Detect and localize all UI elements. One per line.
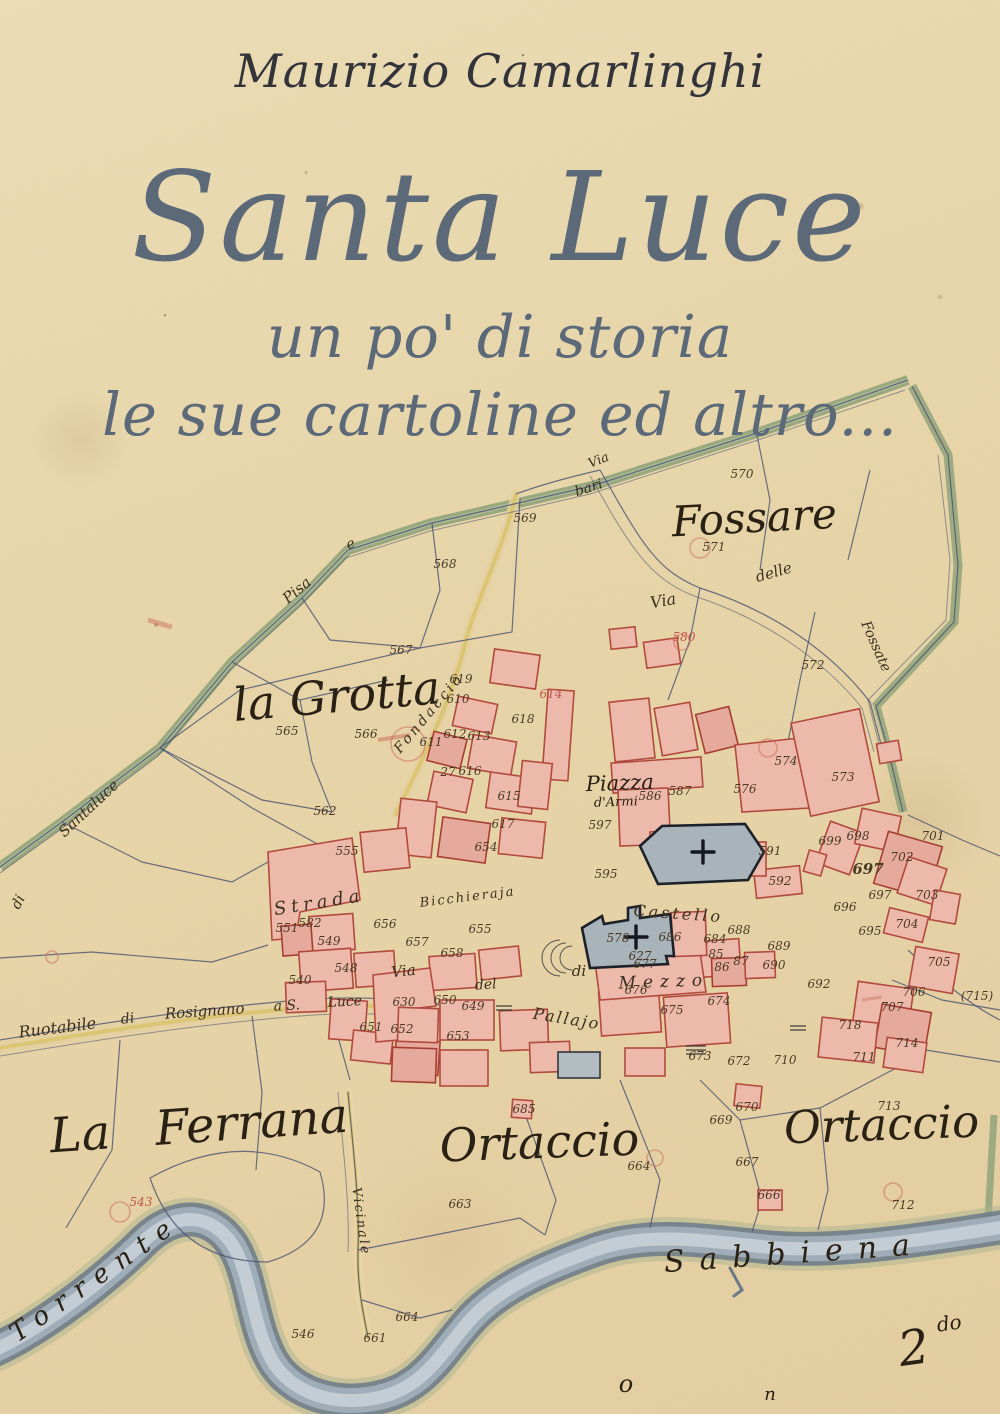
parcel-number-10: 568 — [434, 557, 457, 571]
parcel-number-94: 27 — [439, 765, 456, 779]
parcel-number-77: 653 — [447, 1029, 470, 1043]
parcel-number-12: 543 — [130, 1195, 153, 1209]
parcel-number-3: 572 — [802, 658, 825, 672]
parcel-number-35: 703 — [916, 888, 939, 902]
parcel-number-8: 567 — [390, 643, 413, 657]
parcel-number-16: 664 — [396, 1310, 419, 1324]
label-mark-n: n — [764, 1384, 776, 1405]
parcel-number-68: 551 — [276, 921, 299, 935]
parcel-number-18: 666 — [758, 1188, 781, 1202]
parcel-number-33: 695 — [859, 924, 882, 938]
cadastral-map: Fossarela GrottaLa FerranaOrtaccioOrtacc… — [0, 0, 1000, 1414]
parcel-number-65: 591 — [759, 844, 782, 858]
parcel-number-25: 711 — [853, 1050, 876, 1064]
parcel-number-1: 571 — [703, 540, 726, 554]
parcel-number-27: (715) — [961, 989, 994, 1003]
parcel-number-70: 548 — [335, 961, 358, 975]
parcel-number-85: 612 — [444, 727, 467, 741]
parcel-number-47: 686 — [659, 930, 682, 944]
parcel-number-69: 549 — [318, 934, 341, 948]
parcel-number-19: 667 — [736, 1155, 759, 1169]
parcel-number-74: 649 — [462, 999, 485, 1013]
parcel-number-17: 664 — [628, 1159, 651, 1173]
parcel-number-21: 670 — [736, 1100, 759, 1114]
parcel-number-73: 650 — [434, 993, 457, 1007]
parcel-number-62: 587 — [669, 784, 692, 798]
parcel-number-56: 85 — [708, 947, 723, 961]
parcel-number-51: 675 — [661, 1003, 684, 1017]
parcel-number-34: 696 — [834, 900, 857, 914]
parcel-number-78: 654 — [475, 840, 498, 854]
parcel-number-52: 674 — [708, 994, 731, 1008]
parcel-number-15: 663 — [449, 1197, 472, 1211]
parcel-number-20: 669 — [710, 1113, 733, 1127]
parcel-number-87: 614 — [540, 687, 563, 701]
parcel-number-11: 569 — [514, 511, 537, 525]
street-ruotabile-di: di — [120, 1010, 135, 1027]
parcel-number-41: 702 — [891, 850, 914, 864]
label-ortaccio-west: Ortaccio — [439, 1112, 640, 1173]
parcel-number-72: 630 — [393, 995, 416, 1009]
parcel-number-55: 710 — [774, 1053, 797, 1067]
street-luce: Luce — [326, 993, 362, 1011]
parcel-number-0: 570 — [731, 467, 754, 481]
parcel-number-58: 87 — [733, 954, 749, 968]
parcel-number-46: 684 — [704, 932, 727, 946]
label-piazza-2: d'Armi — [594, 794, 638, 811]
parcel-number-84: 611 — [420, 735, 443, 749]
parcel-number-22: 685 — [513, 1102, 536, 1116]
parcel-number-45: 688 — [728, 923, 751, 937]
parcel-number-9: 562 — [314, 804, 337, 818]
parcel-number-66: 555 — [336, 844, 359, 858]
label-fossare: Fossare — [669, 489, 838, 547]
parcel-number-61: 597 — [589, 818, 612, 832]
parcel-number-26: 714 — [896, 1036, 919, 1050]
parcel-number-36: 697 — [852, 860, 884, 878]
parcel-number-81: 657 — [406, 935, 429, 949]
parcel-number-82: 658 — [441, 946, 464, 960]
parcel-number-79: 655 — [469, 922, 492, 936]
parcel-number-23: 713 — [878, 1099, 901, 1113]
parcel-number-38: 698 — [847, 829, 870, 843]
parcel-number-80: 656 — [374, 917, 397, 931]
parcel-number-90: 617 — [492, 817, 515, 831]
street-via-pallajo-1: Via — [390, 961, 416, 981]
parcel-number-37: 697 — [869, 888, 892, 902]
parcel-number-42: 692 — [808, 977, 831, 991]
parcel-number-14: 661 — [364, 1331, 387, 1345]
parcel-number-67: 582 — [299, 916, 322, 930]
parcel-number-54: 672 — [728, 1054, 751, 1068]
street-di-mezzo-1: di — [572, 962, 587, 980]
parcel-number-13: 546 — [292, 1327, 315, 1341]
parcel-number-6: 565 — [276, 724, 299, 738]
parcel-number-91: 618 — [512, 712, 535, 726]
parcel-number-93: 627 — [629, 949, 652, 963]
parcel-number-32: 704 — [896, 917, 919, 931]
parcel-number-92: 619 — [450, 672, 473, 686]
parcel-number-5: 574 — [775, 754, 798, 768]
parcel-number-49: 578 — [607, 931, 630, 945]
parcel-number-57: 86 — [714, 960, 730, 974]
street-via-pallajo-2: del — [474, 976, 497, 993]
parcel-number-83: 610 — [447, 692, 470, 706]
parcel-number-71: 540 — [289, 973, 312, 987]
parcel-number-43: 690 — [763, 958, 786, 972]
parcel-number-89: 616 — [459, 764, 482, 778]
parcel-number-75: 651 — [360, 1020, 383, 1034]
parcel-number-28: 718 — [839, 1018, 862, 1032]
parcel-number-76: 652 — [391, 1022, 414, 1036]
parcel-number-86: 613 — [468, 729, 491, 743]
label-quarter-mark-sup: do — [935, 1309, 963, 1336]
parcel-number-31: 705 — [928, 955, 951, 969]
parcel-number-60: 595 — [595, 867, 618, 881]
parcel-number-2: 580 — [673, 630, 696, 644]
parcel-number-63: 586 — [639, 789, 662, 803]
church-upper — [640, 824, 766, 884]
parcel-number-59: 592 — [769, 874, 792, 888]
parcel-number-39: 699 — [819, 834, 842, 848]
parcel-number-88: 615 — [498, 789, 521, 803]
parcel-number-53: 673 — [689, 1049, 712, 1063]
book-cover: Fossarela GrottaLa FerranaOrtaccioOrtacc… — [0, 0, 1000, 1414]
parcel-number-40: 701 — [922, 829, 945, 843]
parcel-number-44: 689 — [768, 939, 791, 953]
parcel-number-30: 706 — [903, 985, 926, 999]
parcel-number-24: 712 — [892, 1198, 915, 1212]
parcel-number-64: 576 — [734, 782, 757, 796]
parcel-number-7: 566 — [355, 727, 378, 741]
label-mark-o: o — [619, 1370, 633, 1398]
parcel-number-4: 573 — [832, 770, 855, 784]
parcel-number-50: 676 — [625, 983, 648, 997]
parcel-number-29: 707 — [881, 1000, 904, 1014]
street-a-s: a S. — [273, 997, 300, 1014]
